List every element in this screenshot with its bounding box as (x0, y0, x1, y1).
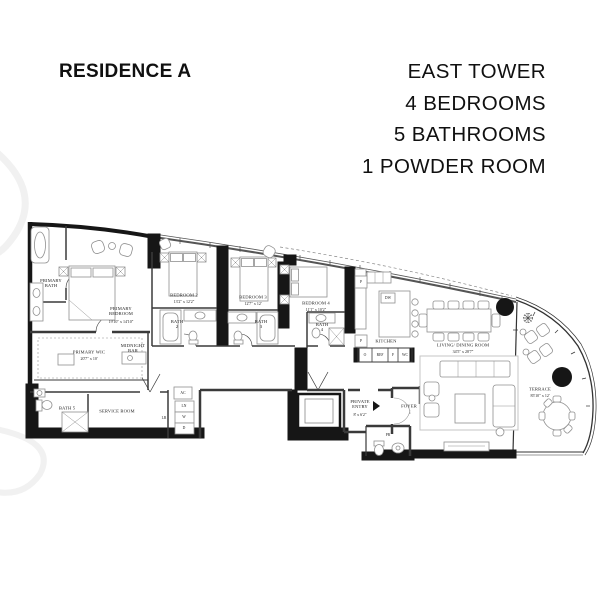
label-washer: W (182, 415, 185, 419)
tower-name: EAST TOWER (362, 56, 546, 88)
label-refrigerator: REF (377, 353, 384, 357)
label-dryer: D (183, 426, 186, 430)
label-bedroom-4-dim: 11'1" x 10'2" (306, 308, 327, 312)
label-bedroom-3: BEDROOM 3 (239, 294, 267, 299)
column-icon (496, 298, 514, 316)
label-bath-3: BATH 3 (254, 319, 269, 329)
dining-table-icon (419, 301, 500, 341)
sitting-chairs-icon (90, 239, 133, 257)
label-bath-2: BATH 2 (170, 319, 185, 329)
label-lr: LR (162, 416, 167, 420)
bedroom-count: 4 BEDROOMS (362, 88, 546, 120)
label-bath-4: BATH 4 (315, 322, 330, 332)
label-dishwasher: DW (385, 296, 391, 300)
label-terrace: TERRACE (529, 386, 551, 391)
label-powder-room: PR (386, 433, 391, 437)
bar-counter-icon (122, 352, 146, 364)
label-primary-bedroom-dim: 19'10" x 14'10" (109, 320, 134, 324)
label-private-entry: PRIVATE ENTRY (346, 399, 375, 409)
label-freezer: F (392, 353, 394, 357)
unit-summary: EAST TOWER 4 BEDROOMS 5 BATHROOMS 1 POWD… (362, 56, 546, 182)
label-living-dining: LIVING/ DINING ROOM (437, 342, 489, 347)
label-bedroom-3-dim: 12'7" x 12' (244, 302, 261, 306)
powder-room-count: 1 POWDER ROOM (362, 151, 546, 183)
label-bedroom-2: BEDROOM 2 (170, 292, 198, 297)
label-kitchen: KITCHEN (375, 338, 396, 343)
label-primary-bath: PRIMARY BATH (36, 278, 66, 288)
label-oven: O (364, 353, 367, 357)
lounge-chairs-icon (520, 322, 554, 364)
label-pantry-2: P (360, 339, 362, 343)
label-bedroom-4: BEDROOM 4 (302, 300, 330, 305)
label-primary-wic: PRIMARY WIC (73, 349, 105, 354)
elevator-icon (298, 394, 340, 428)
plant-icon (523, 313, 533, 323)
terrace-table-icon (539, 396, 575, 436)
double-door-icon (394, 398, 410, 424)
label-ac: AC (180, 391, 185, 395)
label-bath-5: BATH 5 (59, 405, 75, 410)
residence-title: RESIDENCE A (59, 61, 191, 83)
column-icon (552, 367, 572, 387)
label-service-room: SERVICE ROOM (99, 408, 135, 413)
bathroom-fixtures-icon (160, 310, 216, 344)
label-terrace-dim: 85'10" x 12' (530, 394, 549, 398)
label-primary-wic-dim: 20'7" x 10' (80, 357, 97, 361)
label-primary-bedroom: PRIMARY BEDROOM (98, 306, 144, 316)
bed-icon (158, 237, 206, 296)
label-wine-cooler: WC (402, 353, 408, 357)
label-bedroom-2-dim: 13'2" x 12'2" (174, 300, 195, 304)
label-living-dining-dim: 34'5" x 28'7" (453, 350, 474, 354)
label-midnight-bar: MIDNIGHT BAR (120, 343, 147, 353)
label-linen: LN (182, 404, 187, 408)
vanity-icon (30, 283, 43, 321)
label-foyer: FOYER (401, 403, 417, 408)
sofa-icon (420, 356, 518, 451)
bathroom-count: 5 BATHROOMS (362, 119, 546, 151)
bathtub-icon (31, 227, 49, 263)
label-private-entry-dim: 8' x 6'2" (353, 413, 366, 417)
label-pantry-1: P (360, 280, 362, 284)
floor-plan-page: RESIDENCE A EAST TOWER 4 BEDROOMS 5 BATH… (0, 0, 600, 600)
